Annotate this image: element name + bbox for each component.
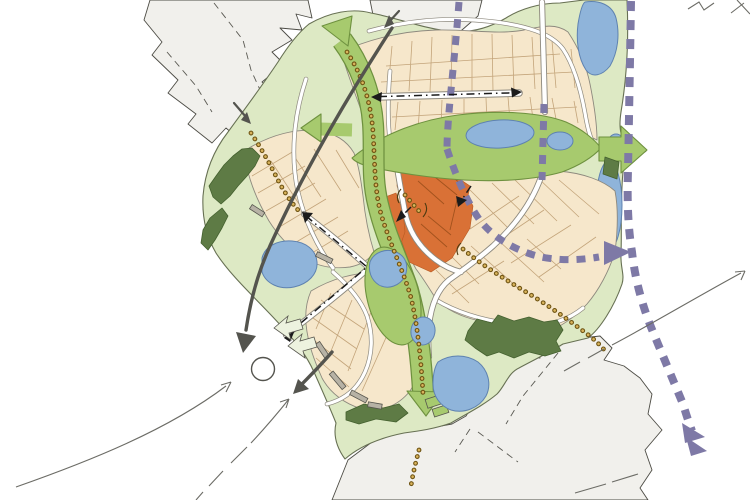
green-arm-west xyxy=(320,129,352,130)
masterplan-svg xyxy=(0,0,750,500)
purple-route-boundary xyxy=(628,1,692,431)
purple-arrowhead-southeast-2 xyxy=(686,437,707,456)
existing-sketch-topright xyxy=(688,0,750,14)
masterplan-map xyxy=(0,0,750,500)
purple-arrowhead-southeast-1 xyxy=(682,423,705,443)
pond-corridor-small xyxy=(547,132,573,150)
existing-road-sketch-southwest xyxy=(16,382,289,500)
roundabout xyxy=(252,358,275,381)
access-arrowhead-south xyxy=(236,332,256,353)
